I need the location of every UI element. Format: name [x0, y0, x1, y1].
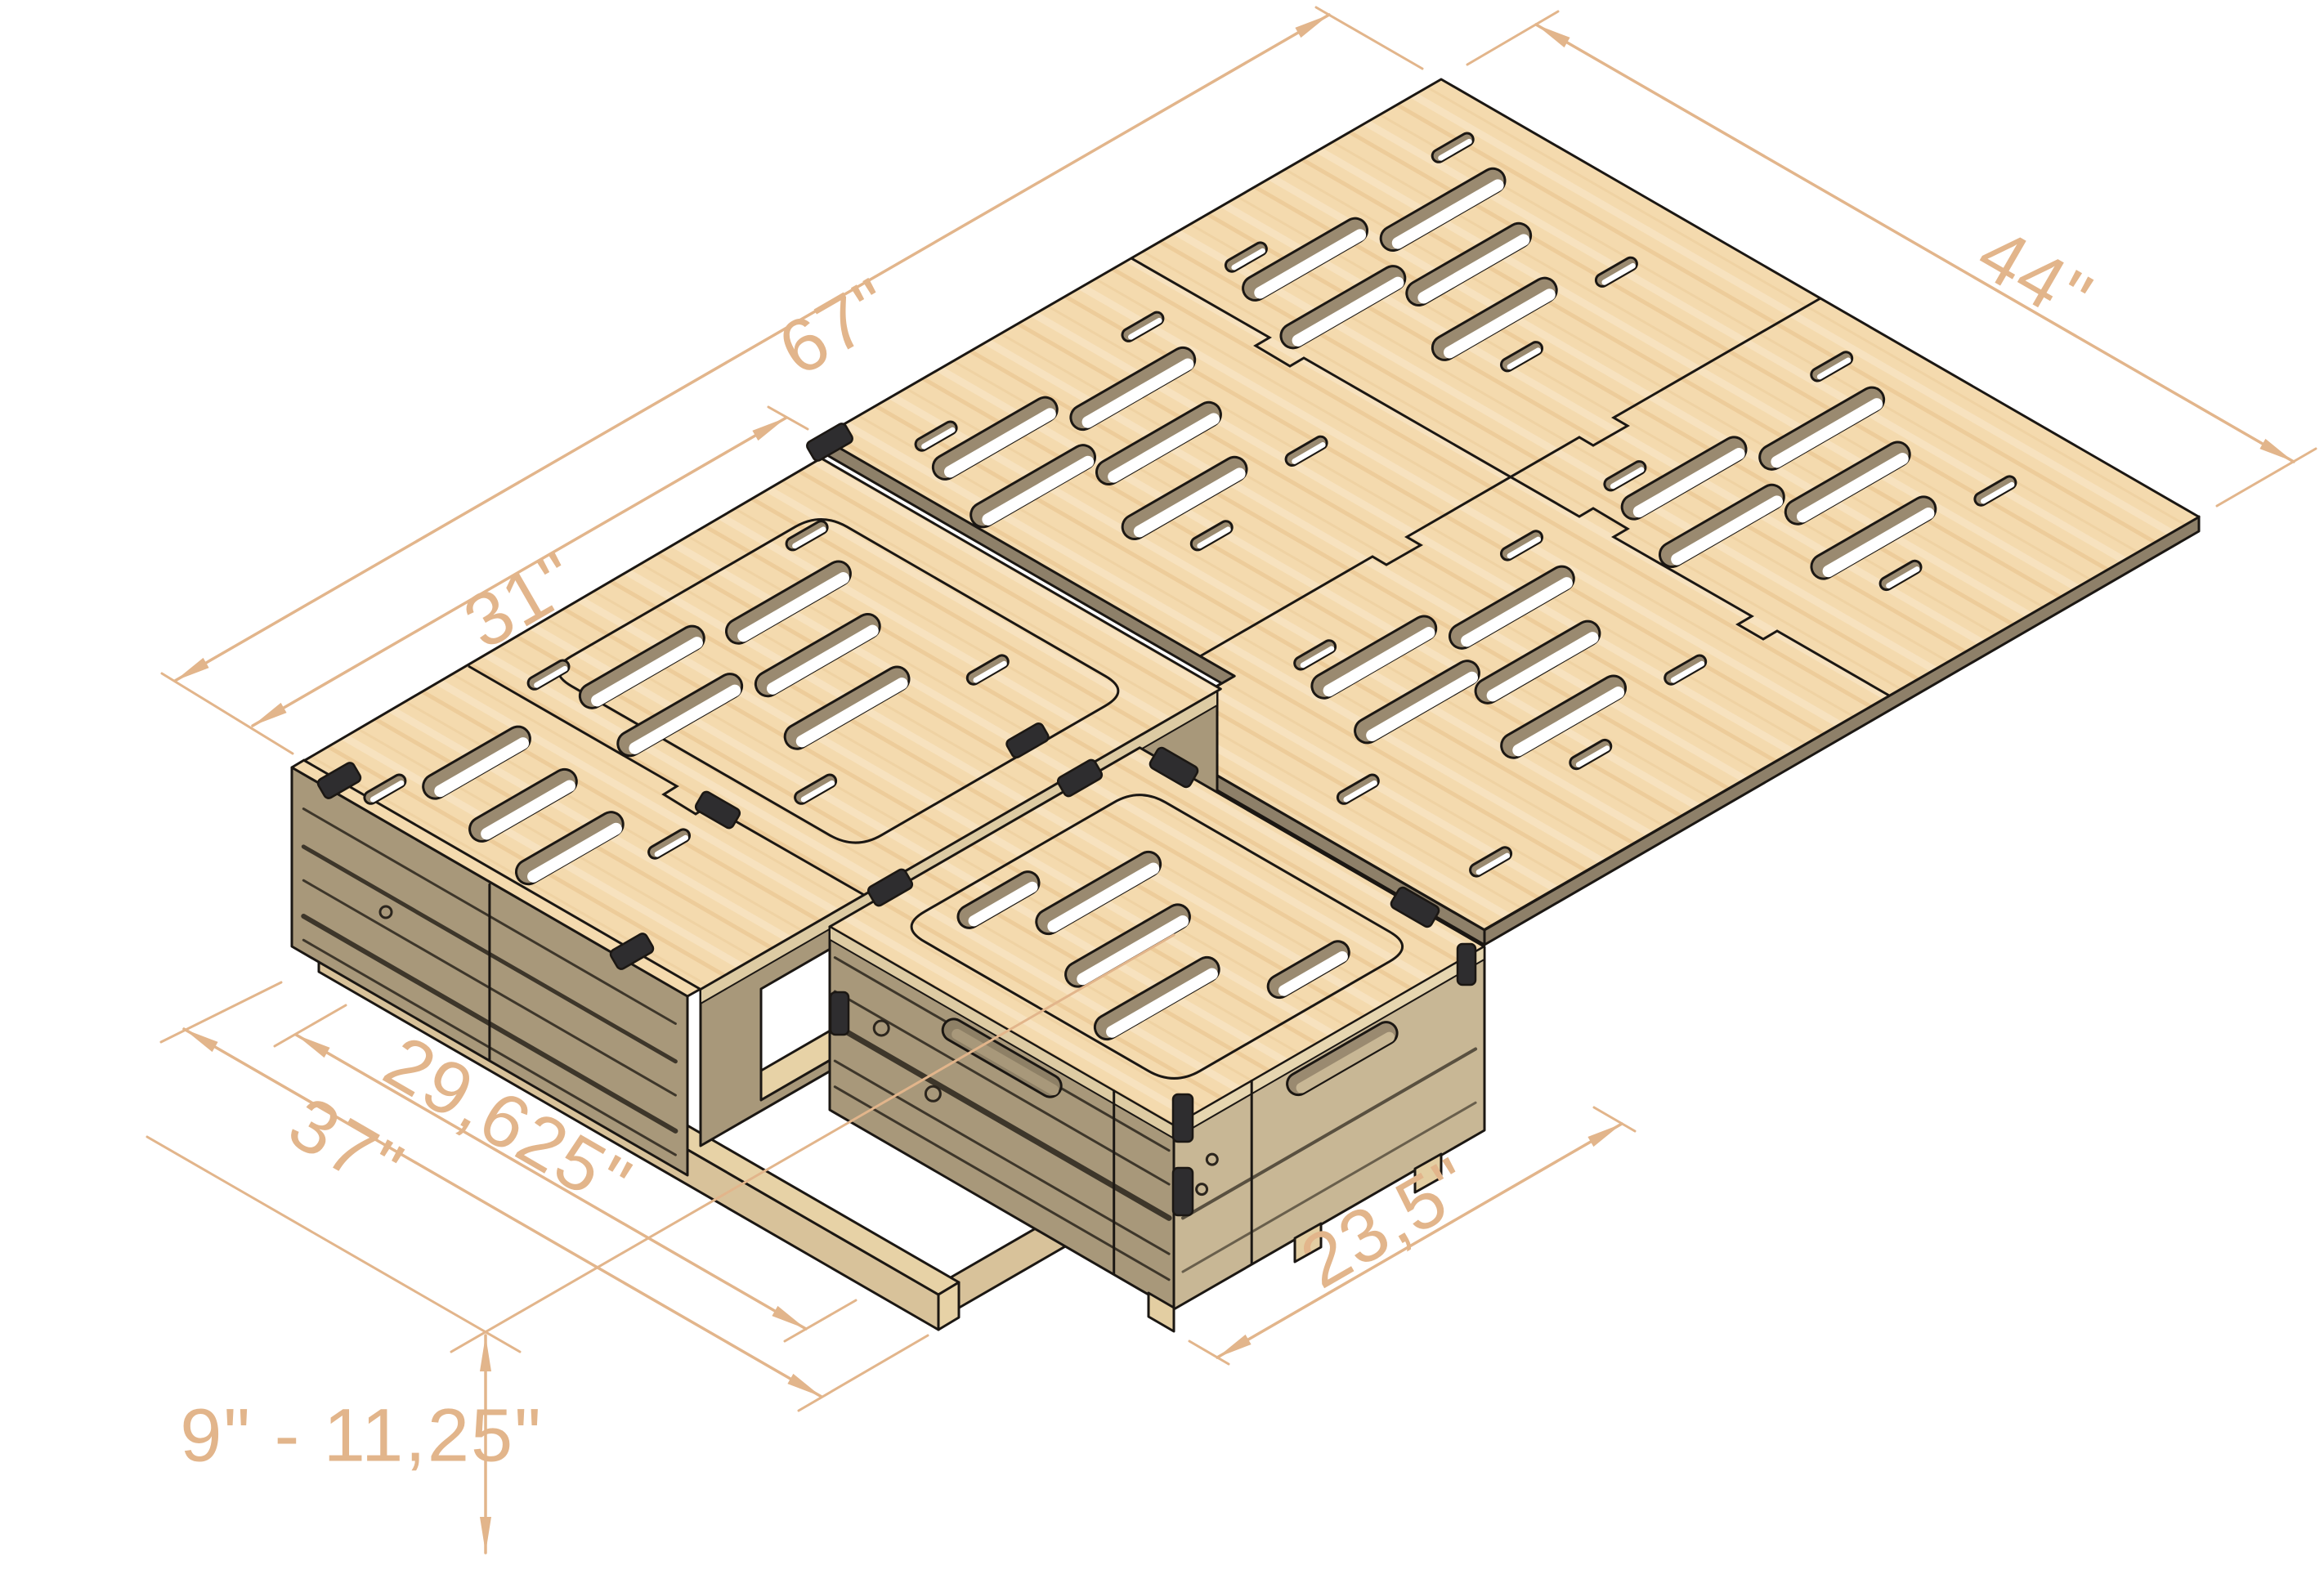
extension-line — [161, 982, 281, 1042]
dimension-arrowhead — [480, 1517, 491, 1553]
dimension-arrowhead — [752, 418, 786, 441]
dimension-arrowhead — [772, 1306, 806, 1329]
extension-line — [1189, 1341, 1229, 1364]
dimension-arrowhead — [1536, 25, 1570, 47]
dimension-arrowhead — [296, 1035, 330, 1058]
extension-line — [1467, 11, 1558, 65]
extension-line — [2217, 449, 2316, 506]
extension-line — [1316, 7, 1422, 69]
dimension-arrowhead — [253, 703, 287, 726]
latch-clip-icon — [1173, 1168, 1193, 1215]
isometric-bed-kit-drawing: 67" 31" 44" 37" 29,625" 23,5" 9" - 11,25… — [0, 0, 2324, 1570]
dimension-arrowhead — [480, 1335, 491, 1371]
dimension-arrowhead — [1295, 15, 1329, 38]
dimension-arrowhead — [175, 658, 209, 681]
latch-clip-icon — [1173, 1094, 1193, 1142]
extension-line — [275, 1005, 346, 1046]
dimension-arrowhead — [2259, 439, 2294, 462]
dimension-label-platform-width: 44" — [1964, 212, 2106, 342]
dimension-arrowhead — [1217, 1335, 1252, 1358]
dimension-arrowhead — [1587, 1124, 1622, 1147]
dimension-arrowhead — [184, 1029, 218, 1052]
latch-clip-icon — [831, 992, 849, 1035]
dimension-label-height-range: 9" - 11,25" — [180, 1393, 543, 1477]
technical-drawing-canvas: 67" 31" 44" 37" 29,625" 23,5" 9" - 11,25… — [0, 0, 2324, 1570]
dimension-arrowhead — [787, 1374, 822, 1397]
latch-clip-icon — [1458, 944, 1475, 985]
extension-line — [799, 1335, 928, 1411]
